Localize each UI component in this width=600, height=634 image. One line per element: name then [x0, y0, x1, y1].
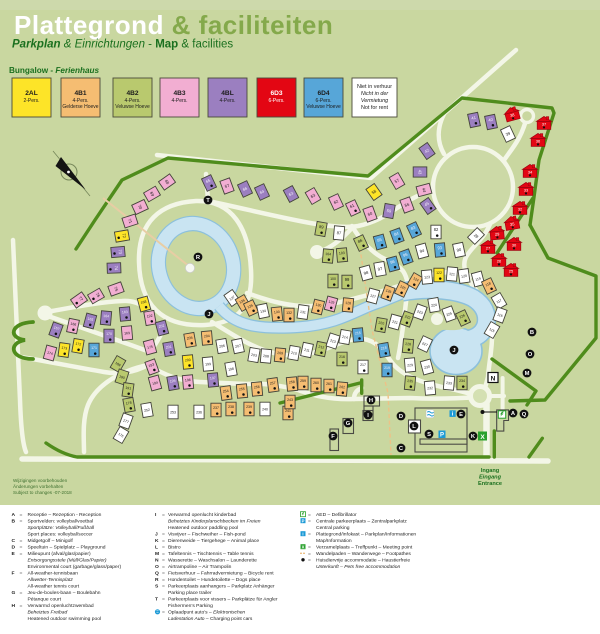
svg-text:=: = [162, 558, 165, 563]
svg-text:256: 256 [254, 385, 260, 389]
svg-text:Veluwse Hoeve: Veluwse Hoeve [115, 104, 150, 110]
svg-text:200: 200 [185, 358, 191, 362]
svg-text:R: R [155, 577, 159, 583]
svg-text:Map/Information: Map/Information [316, 538, 352, 544]
svg-text:104: 104 [325, 252, 331, 256]
svg-text:228: 228 [405, 342, 411, 346]
svg-text:123: 123 [424, 275, 430, 279]
svg-text:Hondentoilet – Hundetoilette –: Hondentoilet – Hundetoilette – Dogs plac… [168, 577, 261, 583]
svg-text:=: = [162, 571, 165, 576]
svg-text:Bungalow - Ferienhaus: Bungalow - Ferienhaus [9, 66, 100, 75]
svg-text:=: = [162, 552, 165, 557]
svg-text:Ingang: Ingang [481, 468, 500, 474]
svg-text:Jeu-de-boules-baan – Boulebahn: Jeu-de-boules-baan – Boulebahn [28, 590, 101, 596]
svg-text:Fietsverhuur – Fahrradvermietu: Fietsverhuur – Fahrradvermietung – Bicyc… [168, 570, 274, 576]
svg-text:216: 216 [339, 355, 345, 359]
svg-text:Airtrampoline – Air Trampolin: Airtrampoline – Air Trampolin [168, 564, 232, 570]
svg-text:G: G [346, 421, 351, 427]
svg-text:=: = [20, 539, 23, 544]
svg-text:132: 132 [286, 311, 292, 315]
svg-text:99: 99 [345, 277, 350, 282]
svg-text:O: O [528, 352, 533, 358]
svg-text:Heatened outdoor swimming pool: Heatened outdoor swimming pool [28, 616, 102, 622]
svg-text:Sport places: volleybal/soccer: Sport places: volleybal/soccer [28, 531, 94, 537]
svg-text:=: = [20, 552, 23, 557]
svg-text:Parkeerplaats aanhangers – Par: Parkeerplaats aanhangers – Parkplatz Anh… [168, 583, 275, 589]
svg-text:Not for rent: Not for rent [361, 105, 388, 111]
svg-text:Centrale parkeerplaats – Zentr: Centrale parkeerplaats – Zentralparkplat… [316, 518, 407, 524]
svg-text:Veluwse Hoeve: Veluwse Hoeve [306, 104, 341, 110]
svg-text:Behetztes Kinderplanschbecken: Behetztes Kinderplanschbecken im Freien [168, 518, 261, 524]
svg-text:Oplaadpunt auto’s – Elektronis: Oplaadpunt auto’s – Elektronischen [168, 609, 245, 615]
svg-text:215: 215 [355, 331, 361, 335]
svg-text:Pétanque court: Pétanque court [28, 596, 62, 602]
svg-text:236: 236 [196, 410, 202, 414]
svg-text:=: = [20, 604, 23, 609]
svg-text:4-Pers.: 4-Pers. [219, 98, 235, 104]
svg-text:100: 100 [330, 277, 336, 281]
svg-text:209: 209 [277, 351, 283, 355]
svg-text:=: = [308, 558, 311, 563]
svg-text:=: = [20, 545, 23, 550]
svg-text:Ladestation Auto – Charging po: Ladestation Auto – Charging point cars [168, 616, 253, 622]
svg-text:F: F [12, 570, 15, 576]
svg-text:P: P [440, 433, 444, 439]
svg-text:169: 169 [124, 331, 130, 335]
svg-text:=: = [20, 519, 23, 524]
svg-text:L: L [412, 424, 416, 430]
svg-text:Plattegrond & faciliteiten: Plattegrond & faciliteiten [14, 10, 333, 40]
svg-text:Verwarmd openluchtzwembad: Verwarmd openluchtzwembad [28, 603, 94, 609]
svg-text:204: 204 [204, 334, 210, 338]
svg-text:261: 261 [326, 382, 332, 386]
svg-text:199: 199 [205, 362, 211, 366]
svg-text:196: 196 [185, 378, 191, 382]
svg-text:B: B [530, 330, 534, 336]
svg-text:Wijzigingen voorbehouden: Wijzigingen voorbehouden [13, 478, 68, 483]
svg-text:239: 239 [246, 405, 252, 409]
svg-text:Receptie – Rezeption - Recepti: Receptie – Rezeption - Reception [28, 512, 102, 518]
svg-text:217: 217 [360, 363, 366, 367]
svg-text:4BL: 4BL [221, 90, 233, 97]
svg-text:30: 30 [512, 243, 517, 248]
svg-text:237: 237 [213, 406, 219, 410]
svg-text:171: 171 [91, 346, 97, 350]
svg-text:Wasserette – Waschsalon – Laun: Wasserette – Waschsalon – Launderette [168, 557, 257, 563]
svg-text:128: 128 [345, 301, 351, 305]
svg-text:4B2: 4B2 [126, 90, 138, 97]
svg-text:258: 258 [289, 380, 295, 384]
svg-text:229: 229 [407, 363, 413, 367]
svg-text:Sportplätze: Volleyball/Fußbal: Sportplätze: Volleyball/Fußball [28, 525, 95, 531]
svg-text:37: 37 [542, 122, 547, 127]
svg-text:163: 163 [122, 310, 128, 314]
svg-text:255: 255 [239, 387, 245, 391]
svg-text:Gelderse Hoeve: Gelderse Hoeve [62, 104, 98, 110]
svg-text:164: 164 [103, 314, 109, 318]
svg-text:Central parking: Central parking [316, 525, 350, 531]
svg-text:=: = [162, 597, 165, 602]
svg-text:Allwetter-Tennisplatz: Allwetter-Tennisplatz [27, 577, 74, 583]
svg-text:6D3: 6D3 [270, 90, 282, 97]
svg-text:A: A [12, 512, 16, 518]
svg-text:238: 238 [228, 405, 234, 409]
svg-text:=: = [162, 584, 165, 589]
svg-text:M: M [525, 371, 530, 377]
svg-text:25: 25 [509, 269, 514, 274]
svg-text:Sportvelden: volleybal/voetbal: Sportvelden: volleybal/voetbal [28, 518, 94, 524]
svg-text:O: O [155, 564, 159, 570]
svg-text:26: 26 [497, 259, 502, 264]
svg-text:C: C [12, 538, 16, 544]
svg-text:All-weather tennis court: All-weather tennis court [28, 583, 80, 589]
svg-text:120: 120 [461, 274, 467, 279]
svg-text:208: 208 [263, 354, 269, 358]
svg-text:All-weather-tennisbaan: All-weather-tennisbaan [28, 570, 79, 576]
svg-text:=: = [308, 532, 311, 537]
svg-text:T: T [155, 596, 158, 602]
svg-text:X: X [480, 434, 485, 441]
svg-text:J: J [452, 348, 455, 354]
svg-text:Wandelpaden – Wanderwege – Foo: Wandelpaden – Wanderwege – Footpathes [316, 551, 411, 557]
svg-text:D: D [399, 414, 403, 420]
svg-text:Entsorgungsstele (Müll/Glas/Pa: Entsorgungsstele (Müll/Glas/Papier) [28, 557, 107, 563]
svg-text:219: 219 [384, 366, 390, 370]
svg-text:E: E [459, 412, 463, 418]
svg-text:Environmental court (garbage/g: Environmental court (garbage/glass/paper… [28, 564, 122, 570]
svg-text:Beheiztes Freibad: Beheiztes Freibad [28, 609, 68, 615]
svg-text:M: M [155, 551, 159, 557]
svg-text:J: J [207, 312, 210, 318]
svg-text:N: N [491, 376, 496, 383]
svg-text:B: B [12, 518, 16, 524]
svg-text:253: 253 [170, 410, 176, 414]
svg-text:Änderungen vorbehalten: Änderungen vorbehalten [13, 483, 64, 489]
svg-text:=: = [162, 578, 165, 583]
svg-text:Parking place trailer: Parking place trailer [168, 590, 212, 596]
svg-text:82: 82 [434, 227, 439, 232]
svg-text:2-Pers.: 2-Pers. [23, 98, 39, 104]
svg-text:=: = [162, 545, 165, 550]
svg-text:Huisdiervrije accommodatie – H: Huisdiervrije accommodatie – Haustierfre… [316, 557, 410, 563]
svg-text:232: 232 [427, 386, 433, 390]
svg-text:=: = [20, 513, 23, 518]
svg-text:F: F [331, 434, 335, 440]
svg-text:262: 262 [339, 385, 345, 389]
svg-text:122: 122 [436, 271, 442, 275]
svg-text:=: = [162, 610, 165, 615]
svg-text:2AL: 2AL [25, 90, 37, 97]
svg-text:4B1: 4B1 [74, 90, 86, 97]
svg-text:=: = [308, 519, 311, 524]
svg-text:Heatened outdoor paddling pool: Heatened outdoor paddling pool [168, 525, 238, 531]
svg-text:=: = [20, 571, 23, 576]
svg-text:Speeltuin – Spielplatz – Playg: Speeltuin – Spielplatz – Playground [28, 544, 106, 550]
svg-text:173: 173 [61, 346, 67, 351]
svg-text:L: L [155, 544, 158, 550]
svg-text:33: 33 [524, 188, 529, 193]
svg-text:Verzamelplaats – Treffpunkt –: Verzamelplaats – Treffpunkt – Meeting po… [316, 544, 413, 550]
svg-text:AED – Defibrillator: AED – Defibrillator [316, 512, 357, 518]
svg-text:i: i [302, 531, 303, 536]
svg-text:K: K [155, 538, 159, 544]
svg-text:Milieupunt (afval/glas/papier): Milieupunt (afval/glas/papier) [28, 551, 91, 557]
svg-text:J: J [155, 531, 158, 537]
svg-text:Niet in verhuur: Niet in verhuur [357, 84, 392, 90]
svg-text:H: H [369, 398, 373, 404]
svg-text:254: 254 [223, 389, 229, 394]
svg-text:Eingang: Eingang [479, 475, 502, 481]
svg-text:H: H [12, 603, 16, 609]
svg-text:243: 243 [287, 398, 293, 402]
svg-text:=: = [308, 545, 311, 550]
svg-text:Dierenweide – Tiergehege – Ani: Dierenweide – Tiergehege – Animal place [168, 538, 259, 544]
svg-text:259: 259 [300, 379, 306, 383]
svg-text:Q: Q [155, 570, 159, 576]
svg-text:Parkeerplaats voor vissers – P: Parkeerplaats voor vissers – Parkplätze … [168, 596, 278, 602]
svg-text:131: 131 [300, 310, 306, 315]
svg-text:121: 121 [449, 272, 455, 276]
svg-text:Bistro: Bistro [168, 544, 181, 550]
svg-text:36: 36 [536, 139, 541, 144]
svg-text:133: 133 [274, 310, 280, 315]
svg-text:235: 235 [407, 379, 413, 383]
svg-text:Visvijver – Fischweiher – Fish: Visvijver – Fischweiher – Fish-pond [168, 531, 246, 537]
svg-text:32: 32 [518, 207, 523, 212]
svg-text:Entrance: Entrance [478, 481, 502, 487]
svg-text:260: 260 [313, 381, 319, 385]
svg-text:Vermietung: Vermietung [361, 98, 388, 104]
svg-text:T: T [206, 198, 210, 204]
svg-text:=: = [162, 565, 165, 570]
svg-text:=: = [308, 513, 311, 518]
svg-text:D: D [12, 544, 16, 550]
svg-text:Unterkunft – Pets free accommo: Unterkunft – Pets free accommodation [316, 564, 401, 570]
svg-text:Midgetgolf – Minigolf: Midgetgolf – Minigolf [28, 538, 74, 544]
svg-text:=: = [162, 532, 165, 537]
svg-text:Plattegrond/infokast – Parkpla: Plattegrond/infokast – Parkplan/Informat… [316, 531, 416, 537]
svg-text:233: 233 [446, 381, 452, 385]
svg-text:Fishermen’s Parking: Fishermen’s Parking [168, 603, 213, 609]
svg-text:=: = [162, 539, 165, 544]
svg-text:6-Pers.: 6-Pers. [268, 98, 284, 104]
svg-text:257: 257 [270, 381, 276, 386]
svg-text:G: G [12, 590, 16, 596]
svg-text:Q: Q [522, 412, 527, 418]
svg-text:4B3: 4B3 [173, 90, 185, 97]
svg-text:170: 170 [106, 332, 112, 336]
svg-text:P: P [302, 518, 305, 523]
svg-text:X: X [302, 544, 305, 549]
svg-text:Tafeltennis – Tischtennis – Ta: Tafeltennis – Tischtennis – Table tennis [168, 551, 254, 557]
svg-text:=: = [308, 552, 311, 557]
svg-text:34: 34 [528, 170, 533, 175]
svg-text:240: 240 [262, 407, 268, 411]
svg-text:27: 27 [486, 246, 491, 251]
svg-text:Parkplan & Einrichtungen - Ma: Parkplan & Einrichtungen - Map & facilit… [12, 39, 233, 51]
svg-text:=: = [20, 591, 23, 596]
svg-text:241: 241 [285, 409, 291, 413]
svg-text:43: 43 [418, 170, 423, 175]
svg-text:234: 234 [459, 379, 465, 383]
svg-text:=: = [162, 513, 165, 518]
svg-text:6D4: 6D4 [317, 90, 329, 97]
svg-text:S: S [427, 432, 431, 438]
svg-text:103: 103 [339, 251, 345, 255]
svg-text:4-Pers.: 4-Pers. [171, 98, 187, 104]
svg-text:Nicht in der: Nicht in der [361, 91, 388, 97]
svg-text:191: 191 [125, 386, 131, 391]
svg-text:N: N [155, 557, 159, 563]
svg-text:Subject to changes -07-2018: Subject to changes -07-2018 [13, 490, 72, 495]
svg-text:Verwarmd openlucht kinderbad: Verwarmd openlucht kinderbad [168, 512, 236, 518]
svg-text:197: 197 [210, 376, 216, 380]
